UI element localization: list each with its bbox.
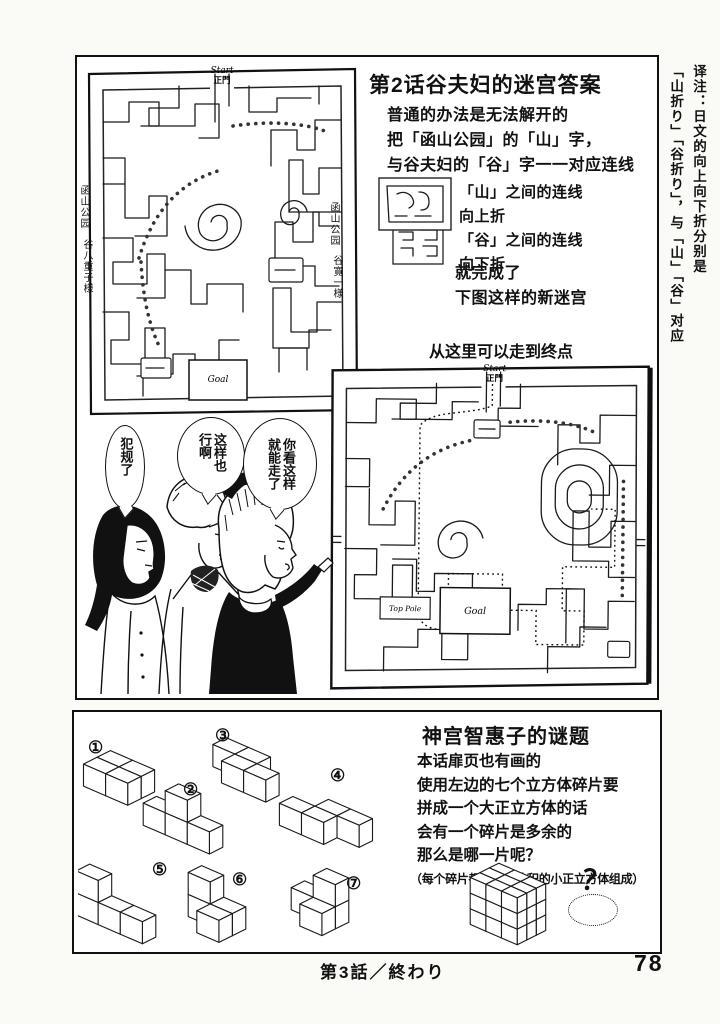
maze2-pole-label: Top Pole: [389, 604, 422, 613]
cube-puzzle-panel: 神宫智惠子的谜题 本话扉页也有画的 使用左边的七个立方体碎片要 拼成一个大正立方…: [72, 710, 662, 954]
maze-answer-title: 第2话谷夫妇的迷宫答案: [369, 69, 602, 99]
maze1-goal-label: Goal: [208, 375, 229, 385]
assembled-cube-drawing: [456, 858, 560, 946]
maze1-left-name-label: 谷八重子様: [80, 239, 92, 294]
result-text: 就完成了 下图这样的新迷宫: [455, 261, 587, 311]
piece-3-number: ③: [215, 726, 230, 746]
cube-puzzle-title: 神宫智惠子的谜题: [422, 720, 590, 749]
piece-6-number: ⑥: [232, 870, 247, 890]
maze-answer-intro: 普通的办法是无法解开的 把「函山公园」的「山」字， 与谷夫妇的「谷」字一一对应连…: [387, 103, 635, 178]
folded-maze-sketch: [377, 172, 455, 268]
maze2-gate-label: 正門: [486, 373, 503, 383]
piece-4-number: ④: [330, 766, 345, 786]
path-note: 从这里可以走到终点: [429, 338, 573, 362]
new-maze-drawing: Start 正門 Top Pole Goal: [321, 358, 656, 695]
piece-7-number: ⑦: [346, 874, 361, 894]
original-maze-drawing: Start 正門 Goal: [83, 62, 361, 418]
cube-puzzle-body: 本话扉页也有画的 使用左边的七个立方体碎片要 拼成一个大正立方体的话 会有一个碎…: [417, 750, 619, 868]
manga-page: { "translator_note": { "line1": "译注：日文的向…: [0, 0, 720, 1024]
puzzle-pieces-drawing: [78, 724, 410, 946]
speech-bubble-woman: 犯规了: [105, 425, 145, 509]
maze1-right-name-label: 谷寛一様: [330, 255, 342, 299]
speech-bubble-girl: 你看这样就能走了: [243, 418, 317, 510]
chapter-end-caption: 第3話／終わり: [320, 958, 445, 983]
translator-note: 译注：日文的向上向下折分别是 「山折り」「谷折り」，与「山」「谷」对应: [661, 64, 709, 394]
maze2-goal-label: Goal: [464, 606, 486, 617]
question-bubble-outline: [568, 894, 618, 926]
maze1-gate-label: 正門: [213, 75, 230, 85]
page-number: 78: [634, 950, 664, 977]
maze1-right-park-label: 函山公园: [327, 202, 339, 246]
maze-answer-panel: Start 正門 Goal 函山公园 谷八重子様 函山公园 谷寛一様 第2话谷夫…: [75, 55, 659, 700]
woman-figure: [85, 505, 169, 694]
piece-1-number: ①: [88, 738, 103, 758]
piece-2-number: ②: [183, 780, 198, 800]
maze1-left-park-label: 函山公园: [77, 185, 89, 229]
speech-bubble-man: 这样也行啊: [177, 417, 245, 495]
piece-5-number: ⑤: [152, 860, 167, 880]
